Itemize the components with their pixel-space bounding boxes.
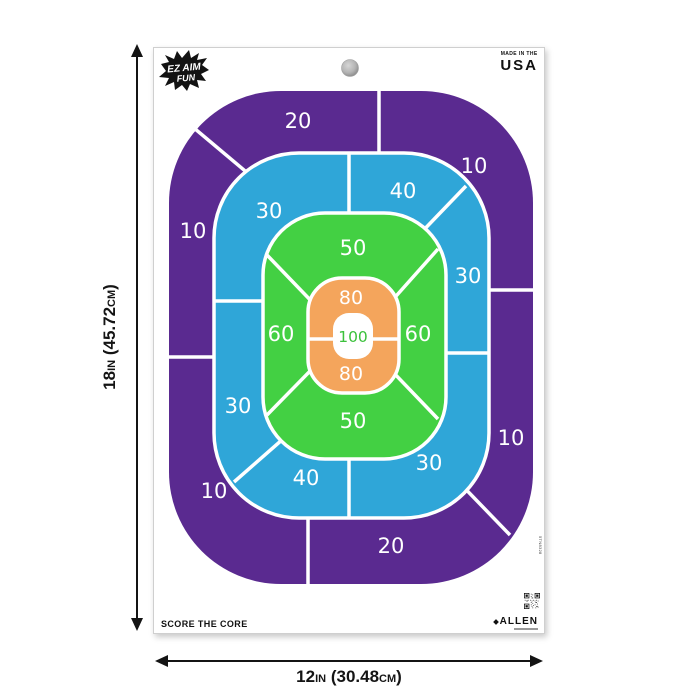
target-graphic: 20 10 10 10 10 20 30 40 30 30 40 30 50 6…	[154, 48, 544, 633]
score-label-blue-left: 30	[225, 394, 252, 418]
score-label-purple-top: 20	[285, 109, 312, 133]
height-dimension-label: 18IN (45.72CM)	[100, 284, 120, 390]
width-unit: IN	[315, 673, 326, 685]
brand-logo: EZ AIM FUN	[159, 50, 209, 92]
height-unit: IN	[106, 360, 118, 371]
arrow-up-icon	[131, 44, 143, 57]
qr-code	[524, 593, 540, 609]
hang-hole-grommet	[342, 60, 359, 77]
width-metric: (30.48	[326, 667, 379, 686]
score-label-purple-bottom: 20	[378, 534, 405, 558]
score-label-green-right: 60	[405, 322, 432, 346]
manufacturer-logo: ALLEN	[494, 616, 538, 630]
width-paren: )	[396, 667, 402, 686]
arrow-left-icon	[155, 655, 168, 667]
arrow-right-icon	[530, 655, 543, 667]
score-label-purple-top-right: 10	[461, 154, 488, 178]
height-paren: )	[100, 284, 119, 290]
score-label-blue-bottom-right: 30	[416, 451, 443, 475]
height-metric-unit: CM	[106, 290, 118, 307]
score-label-green-bottom: 50	[340, 409, 367, 433]
height-dimension-line	[136, 56, 138, 620]
height-metric: (45.72	[100, 307, 119, 360]
score-label-green-top: 50	[340, 236, 367, 260]
width-dimension-line	[167, 660, 531, 662]
arrow-down-icon	[131, 618, 143, 631]
target-sheet: 20 10 10 10 10 20 30 40 30 30 40 30 50 6…	[153, 47, 545, 634]
width-metric-unit: CM	[379, 673, 396, 685]
score-label-core: 100	[338, 328, 368, 346]
score-label-purple-left: 10	[180, 219, 207, 243]
manufacturer-subtext-bar	[514, 628, 538, 630]
score-label-blue-top-right: 40	[390, 179, 417, 203]
manufacturer-name: ALLEN	[500, 616, 538, 627]
made-in-usa-mark: MADE IN THE USA	[500, 52, 538, 73]
score-label-orange-bottom: 80	[339, 363, 363, 385]
score-label-blue-bottom: 40	[293, 466, 320, 490]
score-label-blue-right: 30	[455, 264, 482, 288]
item-number: 5TN8328	[538, 536, 543, 555]
brand-logo-line2: FUN	[176, 72, 196, 84]
score-label-purple-right: 10	[498, 426, 525, 450]
height-value: 18	[100, 371, 119, 390]
product-image: 20 10 10 10 10 20 30 40 30 30 40 30 50 6…	[0, 0, 700, 700]
score-label-blue-top-left: 30	[256, 199, 283, 223]
score-label-orange-top: 80	[339, 287, 363, 309]
width-value: 12	[296, 667, 315, 686]
made-in-usa-text: USA	[500, 58, 538, 73]
tagline: SCORE THE CORE	[161, 619, 248, 629]
score-label-purple-bottom-left: 10	[201, 479, 228, 503]
manufacturer-mark-icon	[493, 619, 499, 625]
width-dimension-label: 12IN (30.48CM)	[296, 667, 402, 687]
score-label-green-left: 60	[268, 322, 295, 346]
